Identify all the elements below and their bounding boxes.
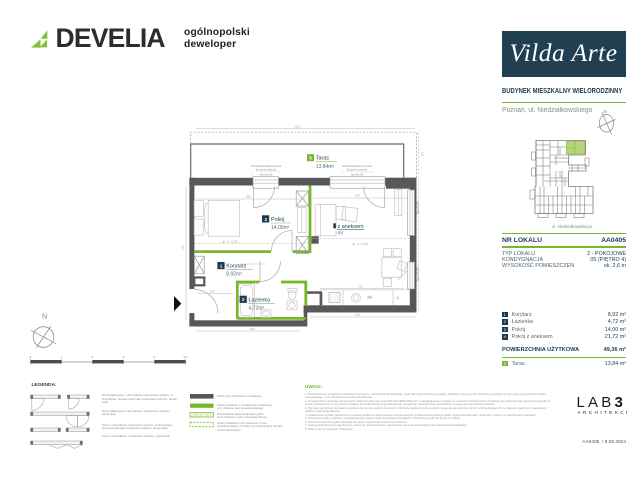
svg-text:kurtyna ścienna: kurtyna ścienna — [347, 168, 368, 172]
svg-text:3: 3 — [264, 217, 267, 222]
svg-text:ul. Niedziałkowskiego: ul. Niedziałkowskiego — [552, 224, 593, 229]
svg-text:Np=15,00: Np=15,00 — [351, 173, 364, 177]
svg-text:Pokój: Pokój — [271, 217, 285, 223]
svg-text:ap. h. +2,45: ap. h. +2,45 — [352, 242, 368, 246]
svg-text:8,92m²: 8,92m² — [226, 272, 242, 278]
svg-text:1: 1 — [61, 355, 63, 359]
svg-text:373: 373 — [355, 313, 360, 317]
svg-text:5: 5 — [309, 156, 312, 161]
svg-text:1411: 1411 — [294, 125, 300, 129]
svg-text:Taras: Taras — [316, 156, 329, 162]
svg-text:13,84m²: 13,84m² — [316, 164, 335, 170]
svg-text:1: 1 — [220, 264, 223, 269]
svg-text:141: 141 — [421, 152, 425, 157]
svg-text:Korytarz: Korytarz — [226, 264, 246, 270]
svg-text:5m: 5m — [184, 355, 189, 359]
svg-text:4: 4 — [154, 355, 156, 359]
svg-text:Np=15,00: Np=15,00 — [260, 173, 273, 177]
svg-text:Łazienka: Łazienka — [249, 297, 271, 303]
svg-text:z aneksem: z aneksem — [338, 224, 365, 230]
svg-text:2: 2 — [92, 355, 94, 359]
svg-text:3: 3 — [123, 355, 125, 359]
svg-text:4,72m²: 4,72m² — [249, 305, 265, 311]
svg-text:Zm: Zm — [368, 295, 373, 299]
svg-text:ap. h. +2,45: ap. h. +2,45 — [222, 240, 238, 244]
svg-text:342: 342 — [181, 245, 185, 250]
svg-text:L: L — [397, 296, 399, 300]
svg-text:kurtyna ścienna: kurtyna ścienna — [256, 168, 277, 172]
svg-text:m²: m² — [338, 231, 344, 237]
svg-text:300: 300 — [246, 195, 251, 199]
svg-text:Np=90,00: Np=90,00 — [416, 267, 420, 281]
svg-text:0: 0 — [30, 355, 32, 359]
svg-text:Np=0,30: Np=0,30 — [416, 202, 420, 214]
svg-text:423: 423 — [355, 194, 360, 198]
svg-text:14,00m²: 14,00m² — [271, 225, 290, 231]
svg-text:150: 150 — [210, 290, 215, 294]
svg-text:222: 222 — [250, 327, 255, 331]
svg-text:N: N — [42, 312, 47, 321]
svg-text:2: 2 — [242, 297, 245, 302]
svg-text:N: N — [604, 109, 607, 114]
svg-text:372: 372 — [358, 285, 363, 289]
